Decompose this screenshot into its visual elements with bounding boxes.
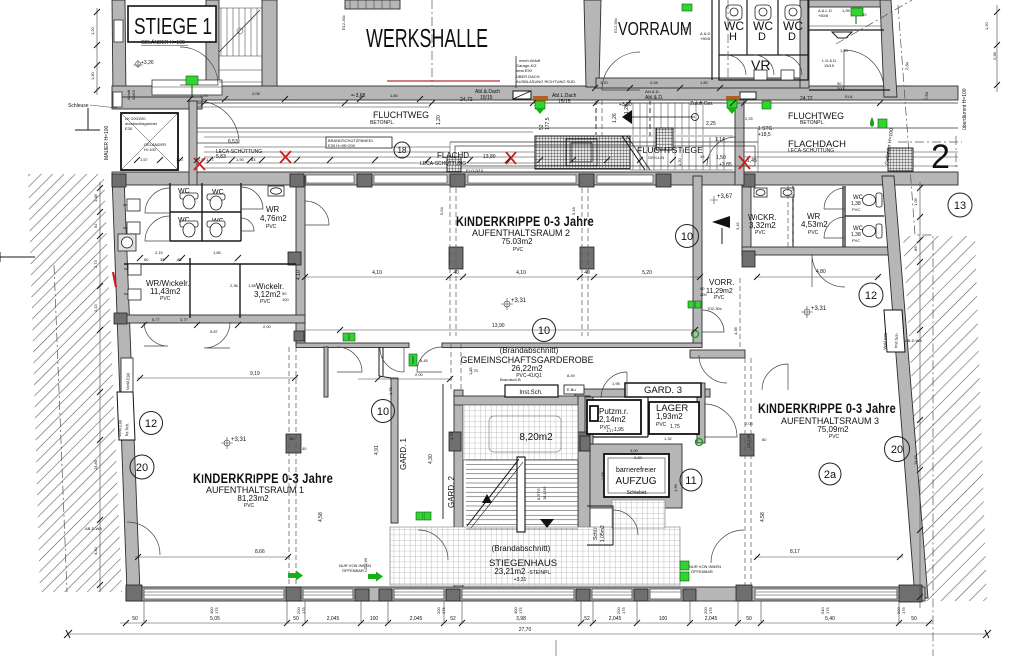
svg-text:1,05m2: 1,05m2: [600, 525, 606, 542]
svg-text:GARD. 3: GARD. 3: [644, 385, 682, 396]
svg-text:4,10: 4,10: [516, 270, 526, 276]
svg-text:4.10: 4.10: [296, 270, 302, 280]
svg-text:2,14m2: 2,14m2: [599, 415, 626, 424]
svg-text:2,38: 2,38: [992, 51, 997, 60]
svg-text:3,32m2: 3,32m2: [749, 221, 776, 230]
svg-text:BETONPL.: BETONPL.: [370, 120, 395, 126]
svg-text:4,75: 4,75: [449, 431, 454, 440]
svg-text:3,98: 3,98: [516, 616, 526, 622]
svg-text:+3,67: +3,67: [717, 194, 733, 200]
svg-text:2,08: 2,08: [252, 91, 261, 96]
svg-text:175: 175: [901, 607, 906, 614]
svg-text:Schleuse: Schleuse: [68, 103, 89, 109]
svg-text:1,75: 1,75: [670, 424, 680, 430]
svg-text:24,72: 24,72: [460, 97, 473, 103]
svg-text:+3,85: +3,85: [719, 162, 732, 168]
svg-text:6,53: 6,53: [228, 139, 238, 145]
svg-text:15/15: 15/15: [558, 99, 571, 105]
svg-text:ÖFFENBAR: ÖFFENBAR: [342, 568, 364, 573]
svg-text:KINDERKRIPPE 0-3 Jahre: KINDERKRIPPE 0-3 Jahre: [456, 214, 594, 229]
svg-text:4,80: 4,80: [816, 269, 826, 275]
svg-text:1,95: 1,95: [612, 381, 621, 386]
svg-text:2,045: 2,045: [410, 616, 423, 622]
svg-text:+3,31: +3,31: [231, 437, 247, 443]
svg-text:90: 90: [700, 286, 705, 291]
svg-text:Inst.Sch.: Inst.Sch.: [519, 390, 543, 396]
svg-text:75,09m2: 75,09m2: [817, 425, 849, 434]
svg-text:30/15: 30/15: [131, 89, 136, 100]
svg-text:1,20: 1,20: [436, 115, 442, 125]
svg-text:GELÄNDER H=100: GELÄNDER H=100: [141, 39, 185, 46]
svg-text:4,58: 4,58: [318, 512, 324, 522]
svg-text:80: 80: [290, 436, 295, 441]
svg-text:ÖFFENBAR: ÖFFENBAR: [691, 569, 713, 574]
svg-text:175: 175: [621, 607, 626, 614]
svg-text:4,30: 4,30: [428, 454, 434, 464]
svg-text:PVC: PVC: [260, 299, 271, 305]
svg-text:Schiebet.: Schiebet.: [627, 490, 648, 496]
svg-text:1,20: 1,20: [677, 157, 682, 166]
svg-text:26,22m2: 26,22m2: [511, 364, 543, 373]
svg-text:3,77: 3,77: [180, 317, 189, 322]
svg-text:40: 40: [584, 270, 590, 276]
svg-text:175: 175: [708, 607, 713, 614]
svg-text:1,20: 1,20: [984, 21, 989, 30]
svg-text:175: 175: [301, 607, 306, 614]
svg-text:AB-D.WA: AB-D.WA: [85, 526, 102, 531]
svg-text:5,05: 5,05: [210, 616, 220, 622]
svg-text:4,38: 4,38: [733, 326, 738, 335]
svg-text:AUSBLASUNG RICHTUNG SÜD: AUSBLASUNG RICHTUNG SÜD: [516, 79, 575, 84]
svg-text:D: D: [788, 31, 796, 43]
svg-text:1,20: 1,20: [90, 26, 95, 35]
svg-text:BETONPL.: BETONPL.: [800, 120, 825, 126]
svg-text:2: 2: [931, 138, 950, 176]
svg-text:+3,31: +3,31: [514, 577, 527, 583]
svg-text:2,03: 2,03: [745, 421, 754, 426]
svg-text:(Brandabschnitt): (Brandabschnitt): [492, 544, 551, 553]
svg-text:=-3,68: =-3,68: [351, 93, 366, 99]
svg-text:PVC: PVC: [808, 230, 819, 236]
svg-text:+50/5: +50/5: [700, 36, 711, 41]
svg-text:AUFZUG: AUFZUG: [615, 476, 656, 487]
svg-text:27,70: 27,70: [519, 627, 532, 633]
svg-text:Verkl.E90: Verkl.E90: [125, 372, 131, 390]
svg-text:5,87: 5,87: [210, 329, 219, 334]
svg-text:E.Bu: E.Bu: [567, 387, 576, 392]
svg-text:4,53m2: 4,53m2: [801, 220, 828, 229]
svg-text:E30 H=95+200: E30 H=95+200: [328, 143, 356, 148]
svg-text:8,66: 8,66: [255, 549, 265, 555]
svg-text:2,20: 2,20: [634, 455, 643, 460]
svg-text:+3,31: +3,31: [511, 298, 527, 304]
svg-text:1,30: 1,30: [90, 71, 95, 80]
svg-text:20: 20: [891, 444, 903, 456]
svg-text:WERKSHALLE: WERKSHALLE: [366, 23, 488, 53]
svg-text:1,57: 1,57: [140, 157, 149, 162]
svg-text:4,58: 4,58: [760, 512, 766, 522]
svg-text:92: 92: [93, 223, 98, 228]
svg-text:ELO-5/16: ELO-5/16: [466, 168, 484, 173]
svg-text:13: 13: [954, 200, 966, 212]
svg-text:1,75: 1,75: [388, 386, 393, 395]
svg-text:4,10: 4,10: [372, 270, 382, 276]
svg-text:11,29m2: 11,29m2: [706, 288, 733, 295]
svg-text:15/15: 15/15: [824, 63, 835, 68]
svg-text:2,15: 2,15: [155, 250, 164, 255]
svg-text:U2-2,65: U2-2,65: [746, 433, 751, 448]
svg-text:5,83: 5,83: [216, 154, 226, 160]
svg-text:1,75: 1,75: [468, 366, 473, 375]
svg-text:175: 175: [214, 607, 219, 614]
svg-text:175: 175: [825, 607, 830, 614]
svg-text:EI2-30c: EI2-30c: [708, 306, 722, 311]
svg-text:2,00: 2,00: [415, 372, 424, 377]
svg-text:Abl.&.D.: Abl.&.D.: [645, 95, 663, 101]
svg-text:.89: .89: [913, 246, 918, 252]
svg-text:175: 175: [441, 607, 446, 614]
svg-text:50: 50: [132, 616, 138, 622]
svg-text:FLACHD.: FLACHD.: [437, 151, 471, 160]
svg-text:2,15: 2,15: [93, 303, 98, 312]
svg-text:+18,5: +18,5: [758, 132, 771, 138]
svg-text:2,045: 2,045: [705, 616, 718, 622]
svg-text:2,045: 2,045: [609, 616, 622, 622]
svg-text:60: 60: [762, 437, 767, 442]
svg-text:2,045: 2,045: [327, 616, 340, 622]
svg-text:Schl.r.: Schl.r.: [593, 526, 599, 540]
svg-text:1,93m2: 1,93m2: [656, 412, 683, 421]
svg-text:Zuluft Gar.: Zuluft Gar.: [690, 101, 713, 107]
svg-text:1,50: 1,50: [716, 155, 726, 161]
svg-text:18,1/30: 18,1/30: [542, 486, 547, 500]
svg-text:PVC: PVC: [852, 207, 860, 212]
svg-text:100: 100: [659, 616, 668, 622]
svg-text:,85: ,85: [176, 257, 182, 262]
svg-text:9,19: 9,19: [250, 371, 260, 377]
svg-text:5,20: 5,20: [642, 270, 652, 276]
svg-text:PVC: PVC: [244, 503, 255, 509]
svg-text:3,12m2: 3,12m2: [254, 290, 281, 299]
svg-text:40: 40: [302, 446, 307, 451]
svg-text:+3,31: +3,31: [811, 306, 827, 312]
svg-text:14,80: 14,80: [93, 459, 98, 470]
svg-text:20: 20: [136, 462, 148, 474]
svg-text:5,77: 5,77: [152, 317, 161, 322]
svg-text:PVC: PVC: [656, 422, 667, 428]
svg-text:VORR.: VORR.: [709, 278, 734, 287]
svg-text:5,18: 5,18: [571, 206, 576, 215]
svg-text:1,90: 1,90: [236, 157, 245, 162]
svg-text:10: 10: [538, 325, 550, 337]
svg-text:2,84: 2,84: [904, 61, 910, 70]
svg-text:8-STG: 8-STG: [536, 488, 541, 500]
svg-text:8,49: 8,49: [567, 373, 576, 378]
svg-text:200: 200: [837, 86, 844, 91]
svg-text:175: 175: [518, 607, 523, 614]
svg-text:5,40: 5,40: [825, 616, 835, 622]
svg-text:3,00: 3,00: [630, 448, 639, 453]
svg-text:E12-30c: E12-30c: [341, 15, 346, 30]
svg-text:8,17: 8,17: [790, 549, 800, 555]
svg-text:1,93: 1,93: [680, 26, 689, 31]
svg-text:1,32: 1,32: [664, 436, 673, 441]
svg-text:D: D: [758, 31, 766, 43]
svg-text:1,09: 1,09: [913, 197, 918, 206]
svg-text:1,36: 1,36: [673, 483, 678, 492]
svg-text:Inst.Sch: Inst.Sch: [893, 333, 899, 348]
svg-text:E12-90c: E12-90c: [613, 18, 618, 33]
svg-text:2,00: 2,00: [263, 324, 272, 329]
svg-text:H=100: H=100: [144, 147, 157, 152]
svg-text:40: 40: [453, 270, 459, 276]
svg-text:13,90: 13,90: [492, 323, 505, 329]
svg-text:100: 100: [370, 616, 379, 622]
svg-text:24,72: 24,72: [800, 96, 813, 102]
svg-text:52: 52: [450, 616, 456, 622]
svg-text:1,20: 1,20: [200, 93, 209, 98]
svg-text:Abl.&.D.: Abl.&.D.: [645, 89, 660, 94]
svg-text:4,40: 4,40: [93, 546, 98, 555]
svg-text:15/15: 15/15: [480, 95, 493, 101]
svg-text:80: 80: [144, 257, 149, 262]
svg-text:1,26: 1,26: [612, 113, 618, 123]
svg-text:12: 12: [865, 290, 877, 302]
svg-text:barrIerefreIer: barrIerefreIer: [616, 467, 657, 474]
svg-text:2,08: 2,08: [650, 80, 659, 85]
svg-text:LECA-SCHÜTTUNG: LECA-SCHÜTTUNG: [788, 147, 834, 154]
svg-text:90: 90: [282, 291, 287, 296]
svg-text:100: 100: [282, 297, 289, 302]
svg-text:PVC: PVC: [755, 230, 766, 236]
svg-text:PVC: PVC: [513, 247, 524, 253]
svg-text:(Brandabschnitt): (Brandabschnitt): [500, 346, 559, 355]
svg-text:1,80: 1,80: [700, 80, 709, 85]
svg-text:PVC: PVC: [160, 296, 171, 302]
svg-text:50: 50: [746, 616, 752, 622]
svg-text:E30: E30: [125, 126, 133, 131]
svg-text:11: 11: [685, 475, 696, 487]
svg-text:200: 200: [700, 292, 707, 297]
svg-text:WR: WR: [266, 205, 280, 214]
svg-text:1,98: 1,98: [600, 471, 605, 480]
svg-text:1,80: 1,80: [390, 93, 399, 98]
svg-text:1,14: 1,14: [715, 137, 725, 143]
svg-text:1,48: 1,48: [93, 193, 98, 202]
svg-text:50: 50: [911, 616, 917, 622]
svg-text:5,54: 5,54: [439, 206, 444, 215]
svg-text:1,95: 1,95: [840, 48, 849, 53]
svg-text:14,80: 14,80: [913, 454, 918, 465]
svg-text:45: 45: [700, 154, 705, 159]
svg-text:2,25: 2,25: [745, 116, 754, 121]
svg-text:GEH-LIN: GEH-LIN: [648, 155, 664, 160]
svg-text:81,23m2: 81,23m2: [237, 494, 269, 503]
svg-text:75.03m2: 75.03m2: [501, 237, 533, 246]
svg-text:PVC: PVC: [714, 295, 725, 301]
svg-text:Et.&: Et.&: [845, 94, 853, 99]
svg-text:PVC: PVC: [829, 434, 840, 440]
svg-text:1,17: 1,17: [606, 428, 615, 433]
svg-text:PVC: PVC: [852, 238, 860, 243]
svg-text:MAUER H=100: MAUER H=100: [104, 125, 110, 160]
svg-text:2,25: 2,25: [706, 121, 716, 127]
svg-text:H: H: [729, 31, 737, 43]
svg-text:hz.Sch.: hz.Sch.: [124, 423, 129, 437]
svg-text:KINDERKRIPPE 0-3 Jahre: KINDERKRIPPE 0-3 Jahre: [758, 401, 896, 416]
svg-text:1,20: 1,20: [600, 80, 609, 85]
svg-text:13,80: 13,80: [483, 154, 496, 160]
svg-text:2a: 2a: [824, 469, 837, 481]
svg-text:2,73: 2,73: [93, 259, 98, 268]
svg-text:2,36: 2,36: [230, 283, 239, 288]
svg-text:10: 10: [681, 231, 693, 243]
svg-text:KINDERKRIPPE 0-3 Jahre: KINDERKRIPPE 0-3 Jahre: [193, 471, 333, 486]
svg-text:177,5: 177,5: [545, 117, 551, 130]
svg-text:1,95: 1,95: [842, 8, 851, 13]
svg-text:8,20m2: 8,20m2: [519, 432, 553, 443]
svg-text:18: 18: [398, 146, 407, 155]
svg-text:52: 52: [584, 616, 590, 622]
svg-text:+50/5: +50/5: [818, 13, 829, 18]
svg-text:AB-D.WA: AB-D.WA: [905, 338, 922, 343]
svg-text:FLUCHTSTIEGE: FLUCHTSTIEGE: [637, 146, 703, 155]
svg-text:best.E90: best.E90: [516, 68, 533, 73]
svg-text:1,85: 1,85: [213, 250, 222, 255]
svg-text:4,76m2: 4,76m2: [260, 214, 287, 223]
svg-text:STIEGE 1: STIEGE 1: [134, 13, 212, 39]
svg-text:GARD. 2: GARD. 2: [447, 475, 456, 508]
svg-text:Brandsch.B: Brandsch.B: [500, 377, 521, 382]
svg-text:11,43m2: 11,43m2: [150, 287, 181, 296]
svg-text:4,91: 4,91: [374, 445, 380, 455]
svg-text:1,95: 1,95: [614, 427, 624, 433]
svg-text:6,45: 6,45: [420, 358, 429, 363]
svg-text:50: 50: [293, 616, 299, 622]
svg-text:PVC: PVC: [266, 224, 277, 230]
svg-text:Verkl.E90: Verkl.E90: [117, 419, 123, 437]
svg-text:überdämmt H=100: überdämmt H=100: [962, 88, 968, 130]
svg-text:12: 12: [145, 418, 157, 430]
svg-text:GARD. 1: GARD. 1: [399, 437, 408, 470]
svg-text:10: 10: [377, 406, 389, 418]
svg-text:3,42: 3,42: [735, 221, 740, 230]
svg-text:1,58: 1,58: [248, 283, 257, 288]
